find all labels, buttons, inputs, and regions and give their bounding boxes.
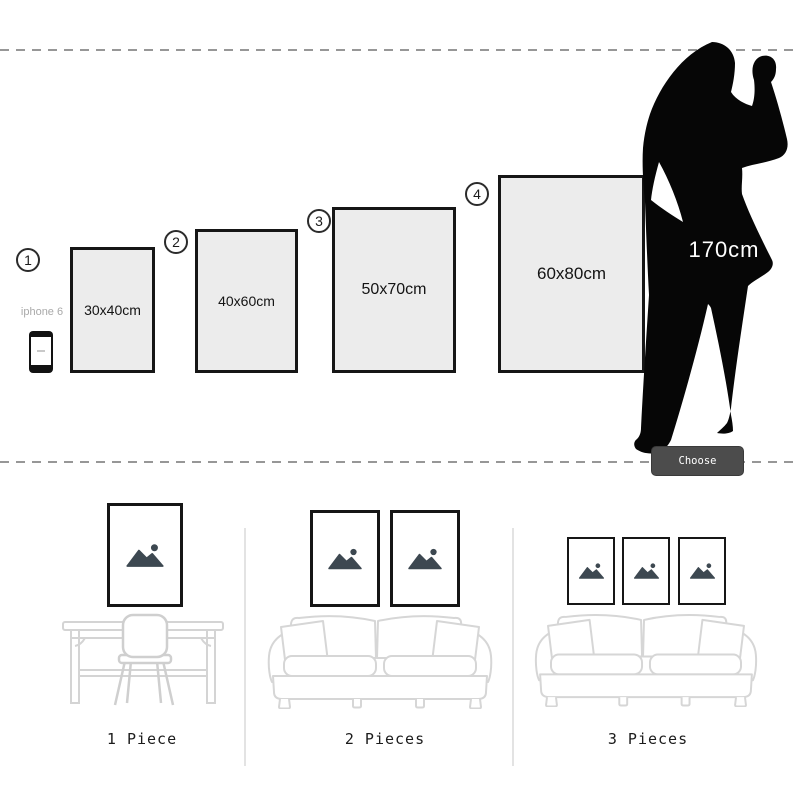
iphone-icon: [29, 331, 53, 373]
painting-frame: [390, 510, 460, 607]
option-number-4: 4: [465, 182, 489, 206]
wall-art-size-guide: 30x40cm 40x60cm 50x70cm 60x80cm 1 2 3 4 …: [0, 0, 800, 800]
sofa-illustration: [264, 612, 496, 709]
size-label: 60x80cm: [537, 264, 606, 284]
scene-divider: [512, 528, 514, 766]
size-frame-60x80: 60x80cm: [498, 175, 645, 373]
arrangement-label-3: 3 Pieces: [583, 730, 713, 748]
mountain-image-placeholder-icon: [633, 562, 660, 580]
arrangement-label-1: 1 Piece: [77, 730, 207, 748]
option-number-2: 2: [164, 230, 188, 254]
painting-frame: [622, 537, 670, 605]
option-number-3: 3: [307, 209, 331, 233]
size-frame-50x70: 50x70cm: [332, 207, 456, 373]
size-frame-30x40: 30x40cm: [70, 247, 155, 373]
desk-chair-illustration: [61, 613, 225, 710]
size-label: 40x60cm: [218, 293, 275, 309]
scene-divider: [244, 528, 246, 766]
option-number-1: 1: [16, 248, 40, 272]
size-label: 30x40cm: [84, 302, 141, 318]
mountain-image-placeholder-icon: [578, 562, 605, 580]
size-frame-40x60: 40x60cm: [195, 229, 298, 373]
painting-frame: [567, 537, 615, 605]
sofa-illustration: [531, 611, 761, 707]
mountain-image-placeholder-icon: [407, 547, 443, 571]
painting-frame: [678, 537, 726, 605]
mountain-image-placeholder-icon: [125, 542, 165, 569]
arrangement-label-2: 2 Pieces: [320, 730, 450, 748]
choose-painting-button[interactable]: Choose Painting: [651, 446, 744, 476]
painting-frame: [107, 503, 183, 607]
person-height-label: 170cm: [684, 237, 764, 263]
painting-frame: [310, 510, 380, 607]
size-label: 50x70cm: [362, 281, 427, 299]
mountain-image-placeholder-icon: [327, 547, 363, 571]
iphone-screen: [31, 337, 51, 365]
mountain-image-placeholder-icon: [689, 562, 716, 580]
iphone-reference-label: iphone 6: [10, 306, 74, 318]
